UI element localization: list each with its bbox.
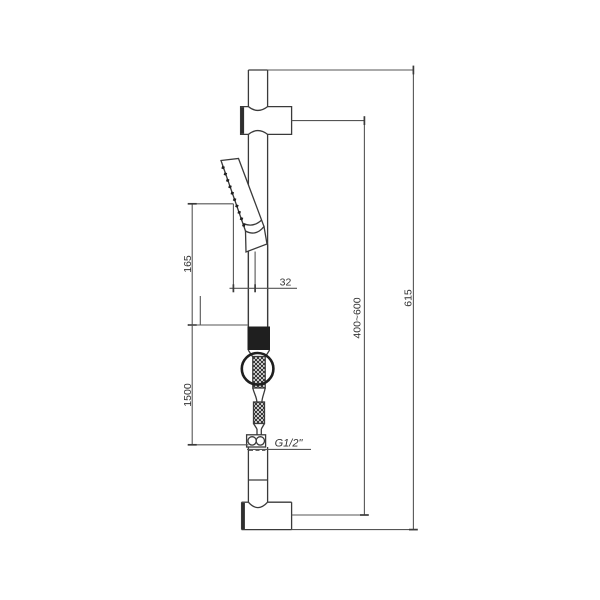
shower-rail-diagram: 165 32 1500 G1/2" 400~600 615 [0,0,600,600]
technical-drawing-canvas: 165 32 1500 G1/2" 400~600 615 [0,0,600,600]
dimension-400-600: 400~600 [292,116,369,515]
dimension-165: 165 [182,204,234,325]
dimension-label-1500: 1500 [182,383,194,407]
top-bracket [241,107,292,135]
handset-handle [248,245,267,327]
hose-grip [248,327,271,351]
dimension-label-400-600: 400~600 [351,297,363,338]
elbow-wall-face [242,503,245,529]
dimension-label-g12: G1/2" [275,438,304,450]
dimension-label-615: 615 [403,289,415,307]
dimension-615: 615 [268,66,418,530]
bottom-supply-elbow [242,502,292,529]
shower-hose [242,327,274,451]
hose-coil-lower [254,402,265,424]
bracket-wall-face [241,107,244,134]
dimension-label-165: 165 [182,255,194,273]
hose-nut [247,435,266,447]
dimension-label-32: 32 [280,277,292,289]
